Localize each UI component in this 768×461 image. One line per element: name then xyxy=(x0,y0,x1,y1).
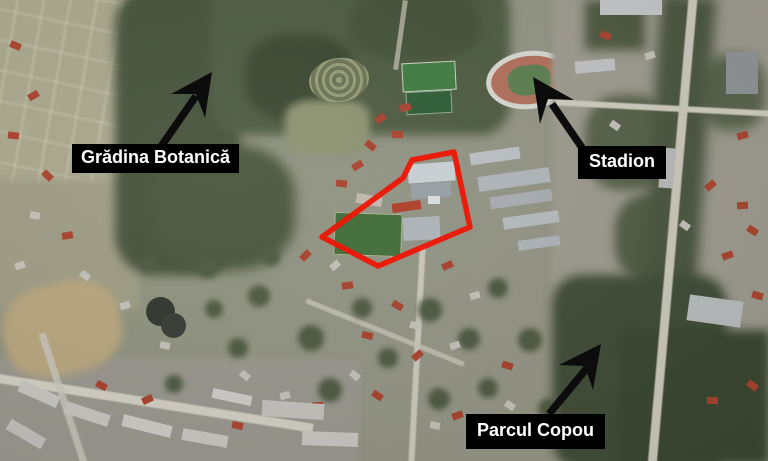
label-stadion: Stadion xyxy=(578,146,666,179)
satellite-map: Grădina Botanică Stadion Parcul Copou xyxy=(0,0,768,461)
highlighted-area-outline xyxy=(322,152,470,266)
arrow-parcul-copou xyxy=(549,344,601,414)
label-gradina-botanica: Grădina Botanică xyxy=(72,144,239,173)
label-parcul-copou: Parcul Copou xyxy=(466,414,605,449)
annotation-overlay xyxy=(0,0,768,461)
arrow-stadion xyxy=(533,77,585,152)
